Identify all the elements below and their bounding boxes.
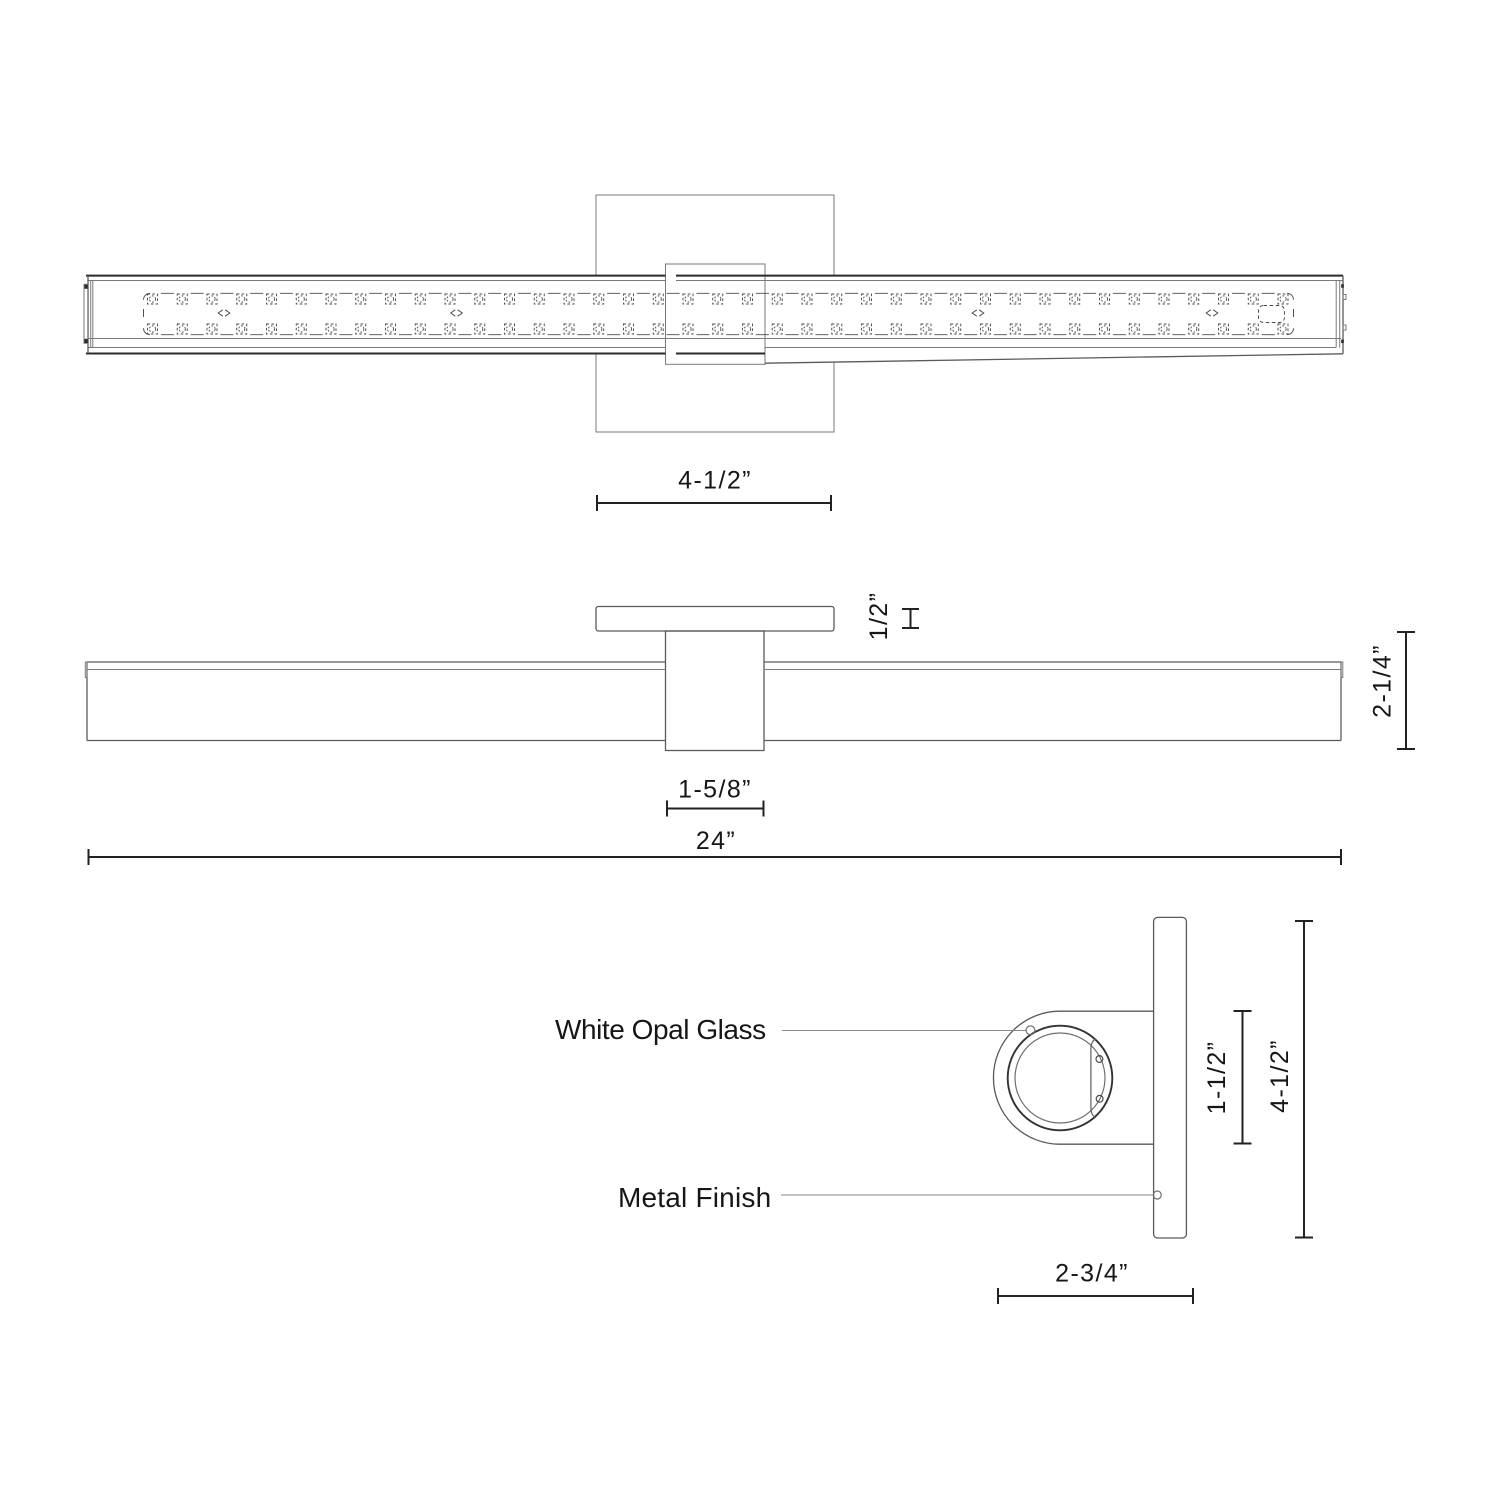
svg-text:24”: 24”: [696, 827, 736, 855]
svg-text:Metal Finish: Metal Finish: [618, 1182, 771, 1213]
svg-text:4-1/2”: 4-1/2”: [678, 467, 752, 495]
svg-text:2-1/4”: 2-1/4”: [1369, 644, 1397, 718]
svg-text:1-1/2”: 1-1/2”: [1203, 1041, 1231, 1115]
svg-text:1/2”: 1/2”: [865, 592, 893, 641]
svg-text:1-5/8”: 1-5/8”: [678, 776, 752, 804]
svg-text:White Opal Glass: White Opal Glass: [555, 1014, 766, 1045]
svg-text:4-1/2”: 4-1/2”: [1266, 1039, 1294, 1113]
svg-text:2-3/4”: 2-3/4”: [1055, 1260, 1129, 1288]
